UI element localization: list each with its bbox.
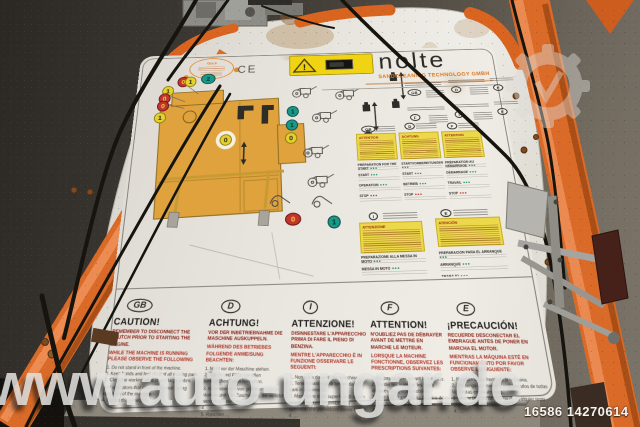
lang-code: D <box>221 300 241 314</box>
lang-code: I <box>303 300 319 314</box>
badge-label: GOLF <box>207 61 217 65</box>
warning-subtitle: VOR DER INBETRIEBNAHME DIE MASCHINE AUSK… <box>207 329 287 343</box>
warning-title: ¡PRECAUCIÓN! <box>446 319 542 332</box>
warning-title: ATTENZIONE! <box>291 317 366 329</box>
warning-subtitle: N'OUBLIEZ PAS DE DÉBRAYER AVANT DE METTR… <box>370 331 444 351</box>
micro-section-row: STOP <box>404 192 447 204</box>
micro-section-row: STOP <box>359 193 402 205</box>
warning-subtitle: REMEMBER TO DISCONNECT THE CLUTCH PRIOR … <box>110 328 204 348</box>
warning-title: ACHTUNG! <box>209 316 288 328</box>
attention-block-es: ATENCIÓN <box>435 217 504 247</box>
sections-it: PREPARAZIONE ALLA MESSA IN MOTOMESSA IN … <box>361 254 428 279</box>
sections-es: PREPARACIÓN PARA EL ARRANQUEARRANQUETRAB… <box>439 249 510 277</box>
warning-triangle-icon: ! <box>290 54 373 75</box>
sections-en: PREPARATION FOR THE STARTSTARTOPERATIONS… <box>358 162 402 205</box>
warning-plate: ! <box>289 53 374 76</box>
lang-code: D <box>451 86 462 93</box>
ce-mark: CE <box>237 63 257 75</box>
lang-cell: D <box>448 79 492 103</box>
lang-code: GB <box>407 89 421 96</box>
brand-logo: nolte <box>377 46 496 74</box>
sections-de: STARTVORBEREITUNGENSTARTBETRIEBSTOP <box>401 161 447 204</box>
lang-cell: GB <box>405 82 448 106</box>
warning-title: ATTENTION! <box>370 318 443 330</box>
photo-scene: GOLF CE ! nolte SANDCLEANING TECHNOLOGY … <box>0 0 640 427</box>
lang-code: GB <box>126 299 153 313</box>
attention-block-it: ATTENZIONE <box>359 221 425 254</box>
lang-code: E <box>493 84 504 91</box>
lang-code: F <box>410 114 421 121</box>
micro-section-row: STOP <box>449 190 492 202</box>
lang-code: E <box>456 302 476 316</box>
lang-code: F <box>446 122 457 129</box>
attention-block-en: ATTENTION <box>356 133 398 161</box>
sections-fr: PRÉPARATION AU DÉMARRAGEDÉMARRAGETRAVAIL… <box>445 160 492 203</box>
svg-text:!: ! <box>303 63 306 72</box>
lang-code: F <box>380 301 399 315</box>
lang-code: I <box>454 111 464 118</box>
attention-block-fr: ATTENTION <box>441 130 485 158</box>
lang-cell: E <box>490 77 522 101</box>
lang-code: E <box>497 108 509 115</box>
attention-block-de: ACHTUNG <box>398 131 441 159</box>
scratches <box>187 231 314 282</box>
lang-cell: E <box>494 101 526 125</box>
listing-id: 16586 14270614 <box>524 404 629 419</box>
warning-subtitle: DISINNESTARE L'APPARECCHIO PRIMA DI FARE… <box>291 330 367 350</box>
warning-title: CAUTION! <box>113 315 205 328</box>
